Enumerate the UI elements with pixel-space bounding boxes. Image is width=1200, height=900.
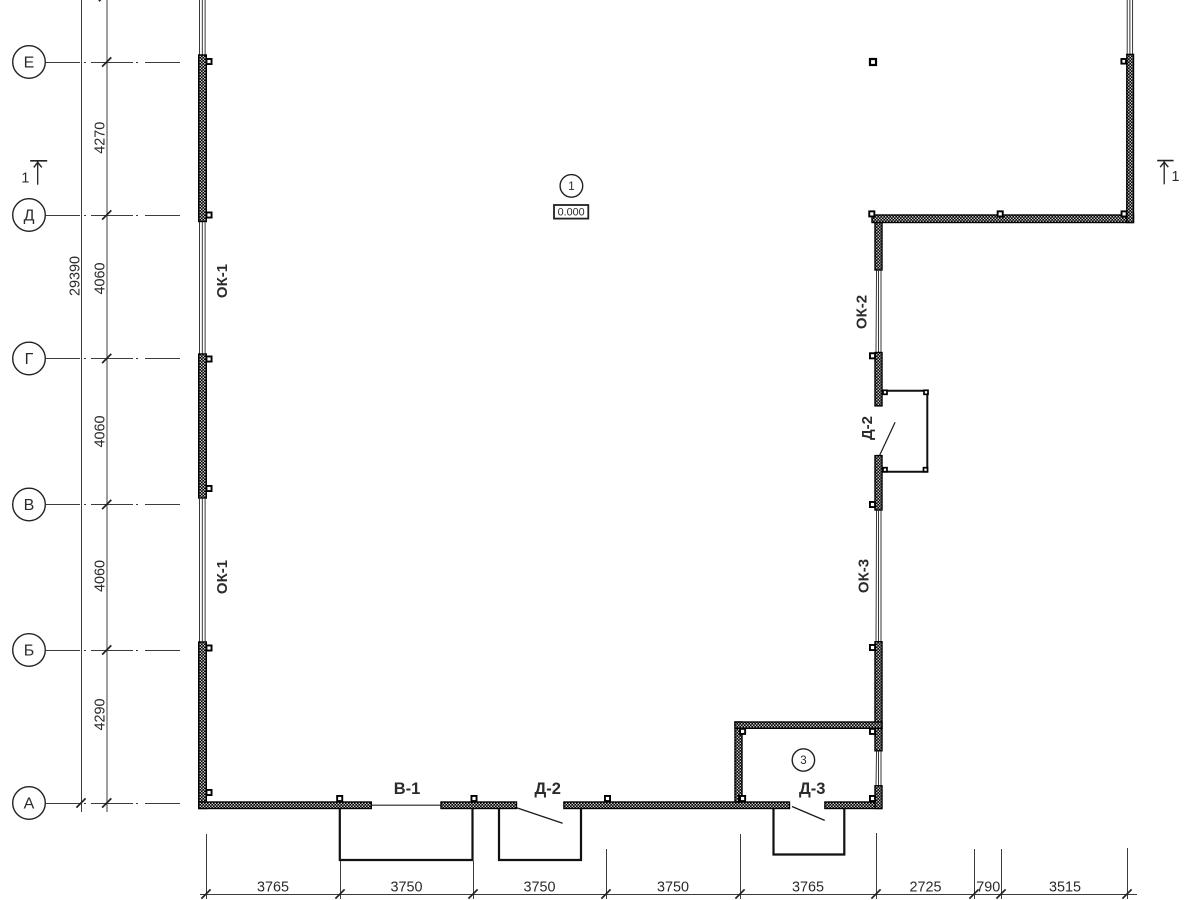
svg-text:3750: 3750 xyxy=(657,880,689,896)
svg-text:3765: 3765 xyxy=(792,880,824,896)
svg-text:ОК-1: ОК-1 xyxy=(214,560,231,594)
svg-text:4290: 4290 xyxy=(92,698,108,730)
svg-text:1: 1 xyxy=(21,170,29,186)
svg-text:790: 790 xyxy=(976,880,1000,896)
svg-text:4060: 4060 xyxy=(92,262,108,294)
svg-text:1: 1 xyxy=(568,181,574,193)
svg-text:3750: 3750 xyxy=(390,880,422,896)
svg-text:4270: 4270 xyxy=(92,122,108,154)
svg-text:Д-3: Д-3 xyxy=(799,780,825,798)
svg-text:ОК-3: ОК-3 xyxy=(856,559,873,593)
svg-text:29390: 29390 xyxy=(68,256,84,296)
svg-text:Г: Г xyxy=(25,351,34,368)
svg-text:1: 1 xyxy=(1172,169,1180,185)
svg-text:2725: 2725 xyxy=(909,880,941,896)
svg-text:ОК-2: ОК-2 xyxy=(854,295,871,329)
svg-text:Д-2: Д-2 xyxy=(859,416,876,440)
svg-text:4060: 4060 xyxy=(92,560,108,592)
svg-text:4060: 4060 xyxy=(92,415,108,447)
svg-text:В: В xyxy=(24,497,35,514)
svg-text:А: А xyxy=(24,795,35,812)
svg-text:0.000: 0.000 xyxy=(558,207,585,219)
svg-text:3515: 3515 xyxy=(1049,880,1081,896)
svg-text:ОК-1: ОК-1 xyxy=(214,264,231,298)
svg-text:3750: 3750 xyxy=(523,880,555,896)
svg-text:3765: 3765 xyxy=(257,880,289,896)
svg-text:Д-2: Д-2 xyxy=(534,780,560,798)
svg-text:3: 3 xyxy=(800,755,806,767)
svg-text:В-1: В-1 xyxy=(394,780,421,798)
svg-text:Е: Е xyxy=(24,54,35,71)
svg-text:Б: Б xyxy=(24,642,35,659)
svg-text:Д: Д xyxy=(24,207,35,224)
